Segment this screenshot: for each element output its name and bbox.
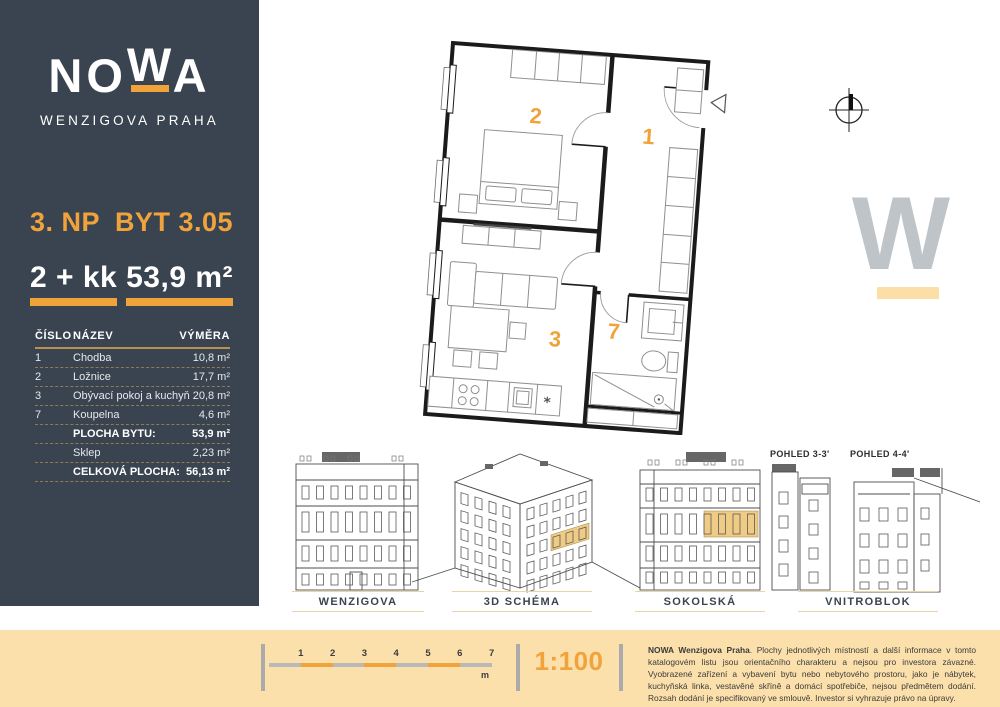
unit-id: BYT 3.05 xyxy=(115,207,233,238)
logo-accent-bar xyxy=(131,85,169,92)
3d-right-windows xyxy=(527,490,589,592)
building-elevations xyxy=(280,448,980,598)
area-table-header: ČÍSLO NÁZEV VÝMĚRA xyxy=(35,330,230,349)
logo-letters: NOWA xyxy=(48,52,210,99)
3d-left-windows xyxy=(461,493,510,591)
area-underline xyxy=(126,298,233,306)
unit-specs: 2 + kk 53,9 m² xyxy=(30,261,233,306)
area-table: ČÍSLO NÁZEV VÝMĚRA 1Chodba10,8 m²2Ložnic… xyxy=(35,330,230,482)
entrance-arrow-icon xyxy=(711,94,726,113)
wenzigova-label: WENZIGOVA xyxy=(292,591,424,612)
brand-subtitle: WENZIGOVA PRAHA xyxy=(0,113,259,128)
3d-schema-label: 3D SCHÉMA xyxy=(452,591,592,612)
3d-schema-elevation xyxy=(412,454,640,592)
sokolska-elevation xyxy=(640,452,760,590)
scale-tick: 5 xyxy=(422,648,434,659)
table-row: 7Koupelna4,6 m² xyxy=(35,406,230,425)
pohled-33-label: POHLED 3-3' xyxy=(770,449,830,459)
watermark-w: W xyxy=(845,182,957,286)
scale-ruler: m 1234567 xyxy=(269,648,499,690)
nowa-logo: NOWA xyxy=(0,52,259,102)
table-row: CELKOVÁ PLOCHA:56,13 m² xyxy=(35,463,230,482)
table-row: 2Ložnice17,7 m² xyxy=(35,368,230,387)
vnitroblok-label: VNITROBLOK xyxy=(798,591,938,612)
unit-header: 3. NP BYT 3.05 xyxy=(30,207,233,238)
pohled-44-label: POHLED 4-4' xyxy=(850,449,910,459)
table-row: PLOCHA BYTU:53,9 m² xyxy=(35,425,230,444)
compass-icon xyxy=(827,88,871,132)
watermark-bar xyxy=(877,287,939,299)
scale-tick: 6 xyxy=(454,648,466,659)
total-area: 53,9 m² xyxy=(126,261,233,306)
disposition-underline xyxy=(30,298,117,306)
room-label-bath: 7 xyxy=(607,318,621,344)
table-row: Sklep2,23 m² xyxy=(35,444,230,463)
pohled-44-elevation xyxy=(854,468,980,592)
scale-unit: m xyxy=(479,670,491,680)
floorplan: * 2 xyxy=(400,25,740,435)
info-panel: NOWA WENZIGOVA PRAHA 3. NP BYT 3.05 2 + … xyxy=(0,0,259,606)
area-table-rows: 1Chodba10,8 m²2Ložnice17,7 m²3Obývací po… xyxy=(35,349,230,482)
floor-label: 3. NP xyxy=(30,207,100,238)
footer-divider xyxy=(261,644,265,691)
sokolska-label: SOKOLSKÁ xyxy=(635,591,765,612)
footer-divider xyxy=(619,644,623,691)
kitchen-counter: * xyxy=(428,376,562,416)
floorplan-drawing: * 2 xyxy=(418,42,728,434)
scale-tick: 1 xyxy=(295,648,307,659)
table-row: 1Chodba10,8 m² xyxy=(35,349,230,368)
bedroom-furniture xyxy=(458,46,606,222)
footer-bar: m 1234567 1:100 NOWA Wenzigova Praha. Pl… xyxy=(0,630,1000,707)
scale-tick: 2 xyxy=(327,648,339,659)
disposition: 2 + kk xyxy=(30,261,117,306)
table-row: 3Obývací pokoj a kuchyň20,8 m² xyxy=(35,387,230,406)
scale-tick: 7 xyxy=(486,648,498,659)
footer-divider xyxy=(516,644,520,691)
scale-tick: 3 xyxy=(358,648,370,659)
scale-ratio: 1:100 xyxy=(524,646,614,677)
room-label-bedroom: 2 xyxy=(529,103,543,129)
scale-tick: 4 xyxy=(390,648,402,659)
pohled-33-elevation xyxy=(772,464,830,590)
disclaimer-text: NOWA Wenzigova Praha. Plochy jednotlivýc… xyxy=(648,645,976,705)
living-room-furniture xyxy=(443,223,561,374)
catalog-page: NOWA WENZIGOVA PRAHA 3. NP BYT 3.05 2 + … xyxy=(0,0,1000,707)
room-label-hallway: 1 xyxy=(642,124,656,150)
room-label-living: 3 xyxy=(548,326,562,352)
wenzigova-elevation xyxy=(296,452,418,590)
